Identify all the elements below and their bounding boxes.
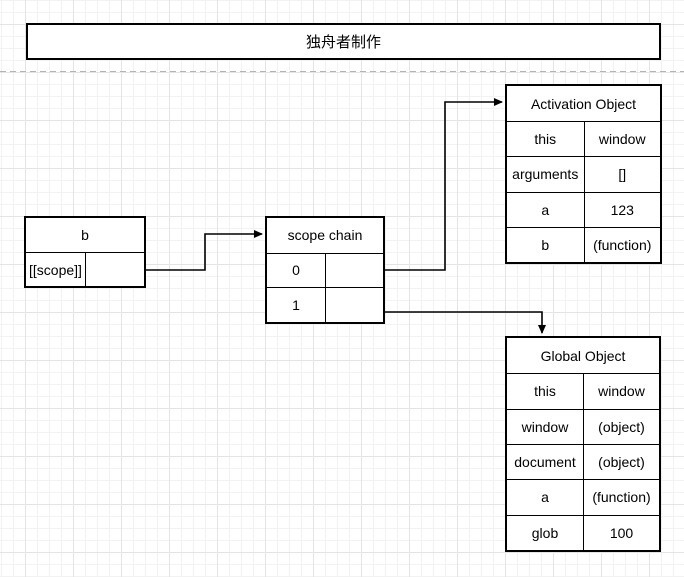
global-row-this-key: this [507,373,583,408]
activation-row-b-value: (function) [584,227,661,262]
table-global-object: Global Object this window window (object… [505,336,661,552]
title-banner: 独舟者制作 [26,23,661,60]
scope-chain-row-0-key: 0 [267,253,325,288]
table-scope-chain: scope chain 0 1 [265,216,385,324]
activation-row-b-key: b [507,227,584,262]
edge-scope0-to-activation-object [385,102,502,270]
table-activation-object: Activation Object this window arguments … [505,84,662,264]
table-global-object-title: Global Object [507,338,659,373]
table-b-title: b [26,218,144,252]
activation-row-a-key: a [507,192,584,227]
global-row-a-value: (function) [583,479,659,514]
scope-chain-row-1-value [325,287,383,322]
title-banner-label: 独舟者制作 [306,31,381,52]
edge-scope1-to-global-object [385,312,542,333]
table-b: b [[scope]] [24,216,146,288]
global-row-window-value: (object) [583,409,659,444]
scope-chain-row-1-key: 1 [267,287,325,322]
table-scope-chain-title: scope chain [267,218,383,253]
global-row-document-key: document [507,444,583,479]
global-row-document-value: (object) [583,444,659,479]
global-row-glob-value: 100 [583,515,659,550]
activation-row-this-key: this [507,121,584,156]
global-row-glob-key: glob [507,515,583,550]
global-row-window-key: window [507,409,583,444]
global-row-this-value: window [583,373,659,408]
activation-row-a-value: 123 [584,192,661,227]
diagram-canvas: 独舟者制作 b [[scope]] scope chain 0 1 Activa… [0,0,684,577]
activation-row-arguments-key: arguments [507,156,584,191]
table-activation-object-title: Activation Object [507,86,660,121]
global-row-a-key: a [507,479,583,514]
table-b-row-scope-key: [[scope]] [26,252,85,286]
table-b-row-scope-value [85,252,144,286]
activation-row-arguments-value: [] [584,156,661,191]
activation-row-this-value: window [584,121,661,156]
scope-chain-row-0-value [325,253,383,288]
edge-scope-ref-to-scope-chain [146,234,262,270]
